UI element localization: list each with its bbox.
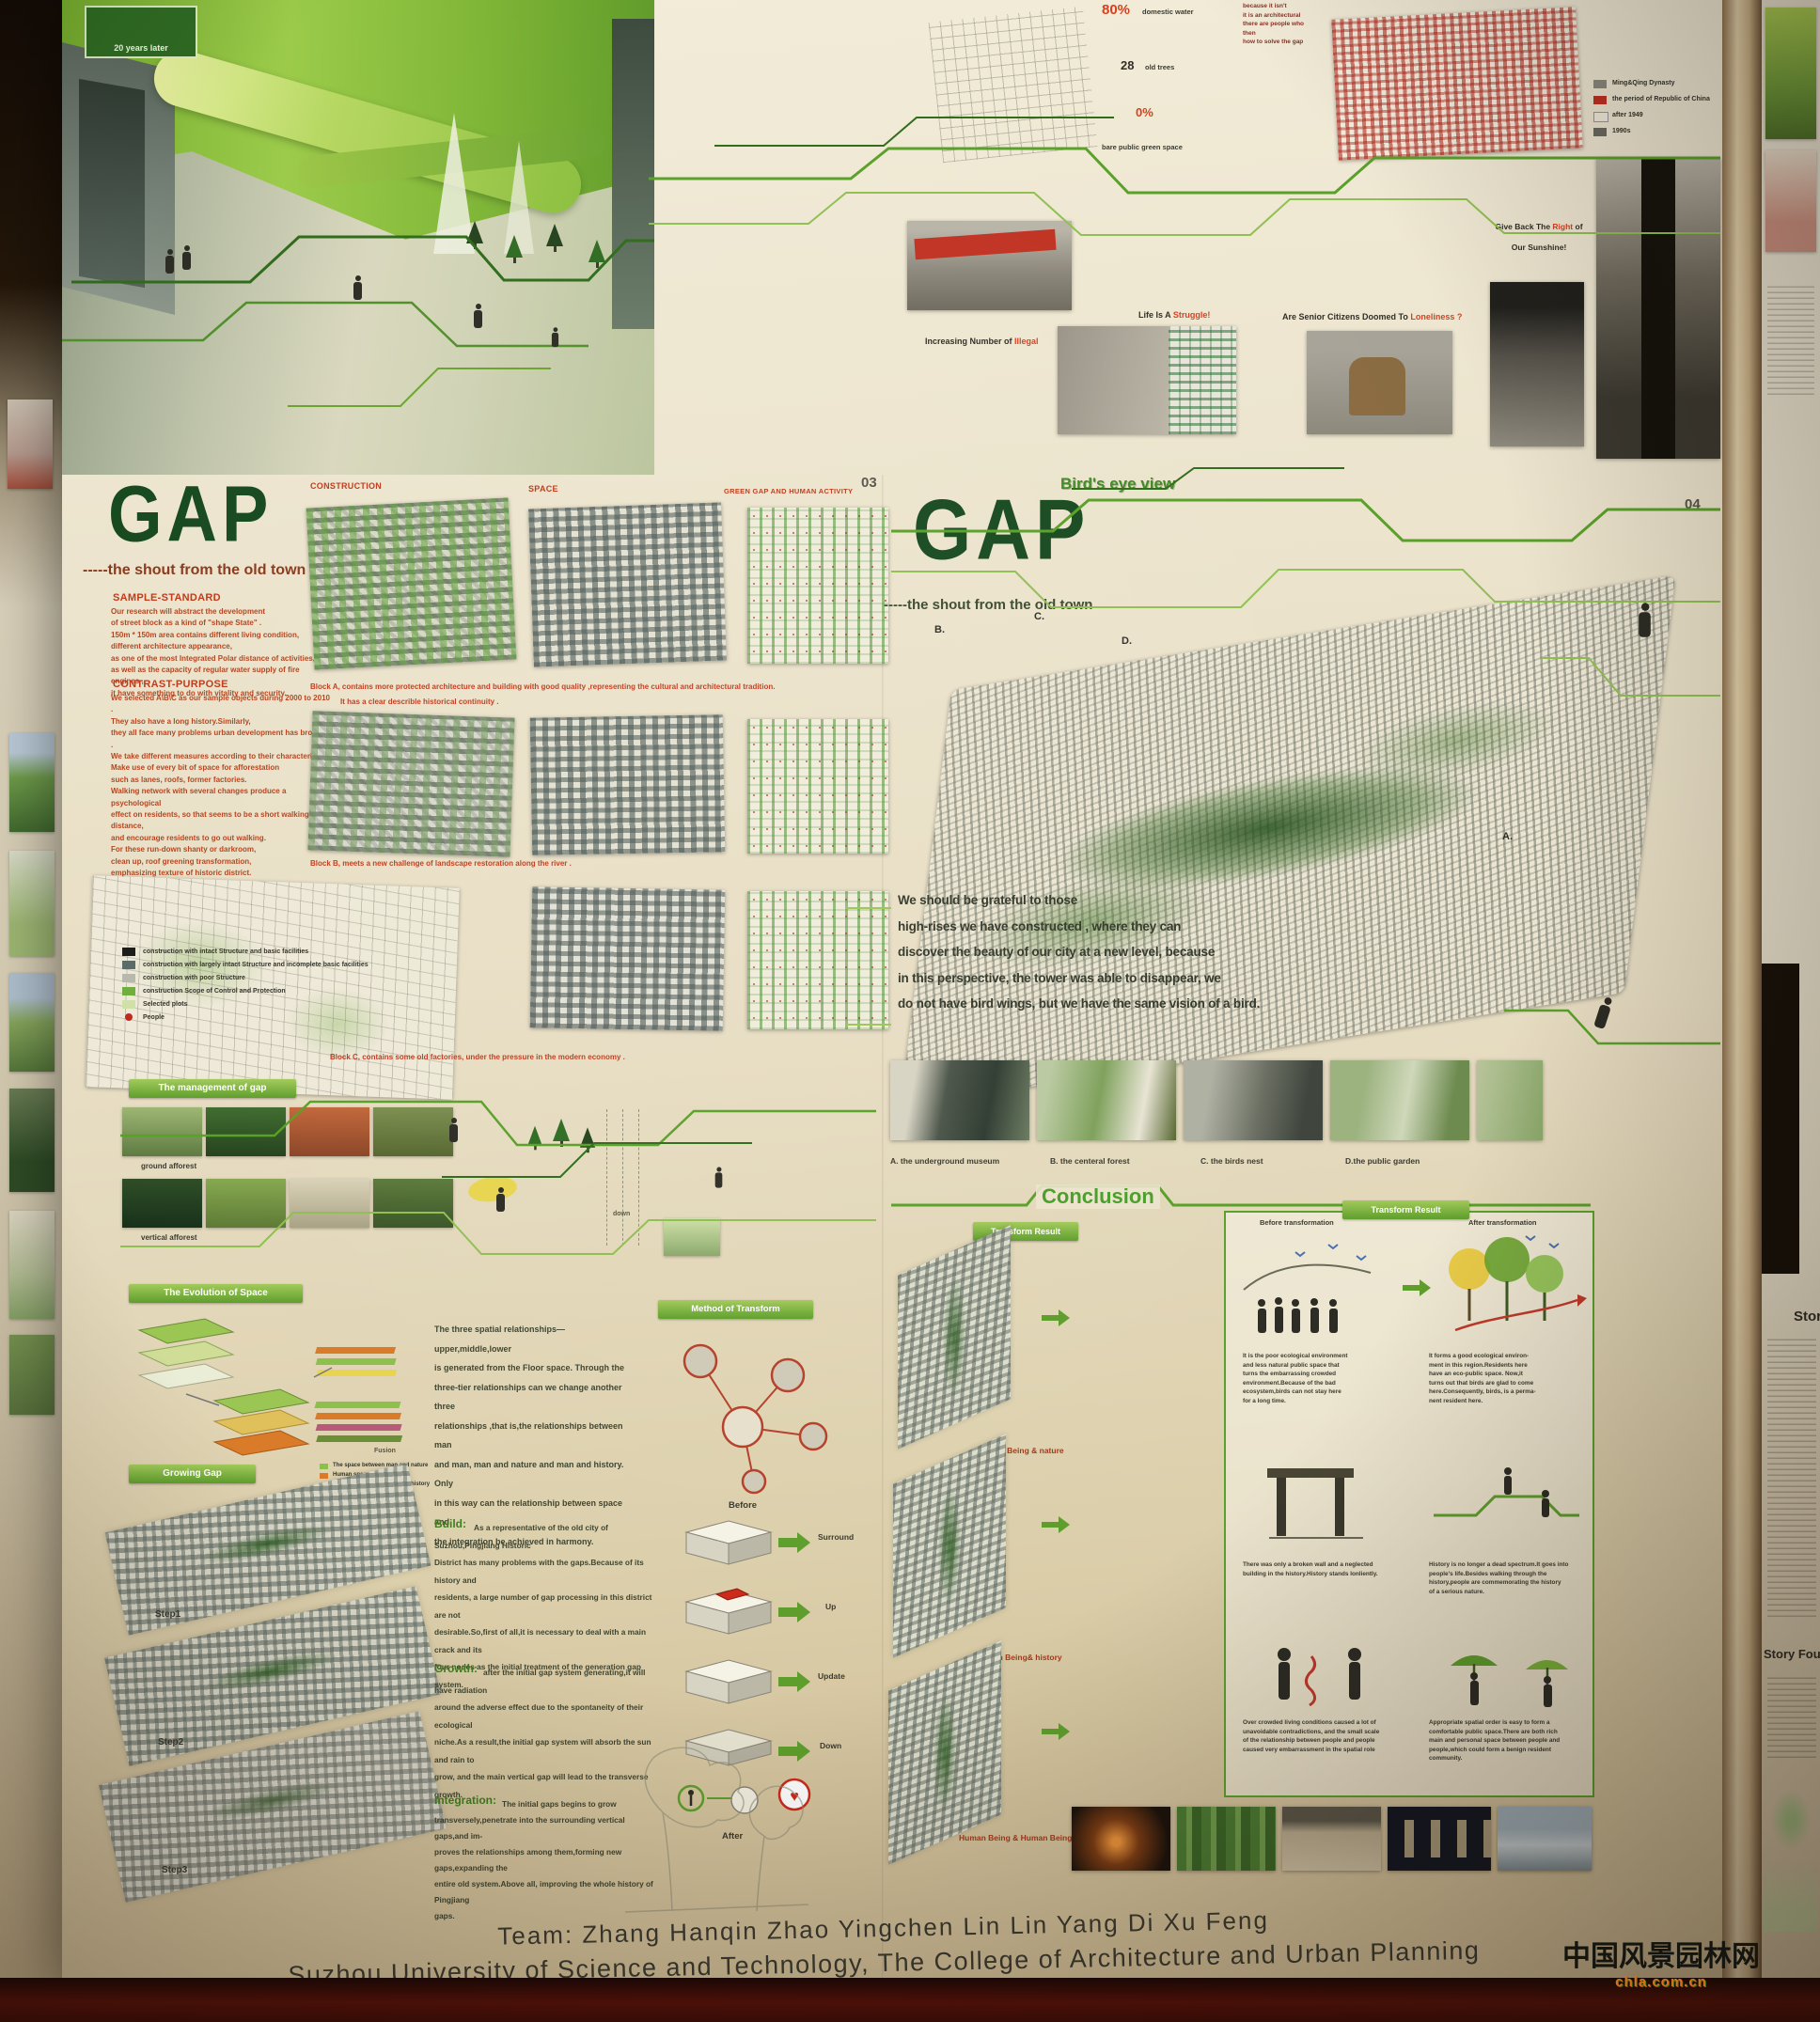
watermark-cn: 中国风景园林网: [1562, 1933, 1760, 1974]
person-silhouette: [182, 252, 191, 270]
panel04-title: GAP: [913, 487, 1090, 572]
legend-chip: [1593, 128, 1607, 136]
umbrella-people-doodle: [1436, 1638, 1587, 1713]
neighbor-thumbnail: [9, 1335, 55, 1415]
legend-label: People: [143, 1014, 165, 1021]
person-silhouette: [474, 310, 482, 328]
neighbor-thumbnail: [9, 733, 55, 832]
stat-value: 80%: [1102, 2, 1130, 18]
legend-chip: [320, 1464, 328, 1469]
arrow-right-icon: [1403, 1278, 1431, 1297]
neighbor-text-lines: [1767, 1335, 1816, 1617]
issue-label-struggle: Life Is A Struggle!: [1138, 310, 1210, 320]
crowded-people-doodle: [1260, 1638, 1391, 1713]
block-a-space-map: [528, 502, 727, 666]
legend-label: Selected plots: [143, 1001, 187, 1008]
bottom-photo-wall: [1498, 1807, 1592, 1871]
matrix-header-space: SPACE: [528, 484, 558, 494]
broken-gate-doodle: [1260, 1459, 1373, 1544]
legend-chip: [122, 987, 135, 995]
construction-legend: construction with intact Structure and b…: [122, 948, 432, 1034]
integration-heading: Integration:: [434, 1794, 496, 1807]
legend-label: 1990s: [1612, 128, 1630, 134]
table-edge: [0, 1978, 1820, 2022]
crowd-branch-doodle: [1239, 1233, 1399, 1346]
calligraphy-panel: [1169, 326, 1236, 434]
eco-trees-doodle: [1436, 1227, 1587, 1344]
marker-b: B.: [934, 624, 945, 635]
history-walk-doodle: [1429, 1459, 1584, 1544]
vertical-afforest-label: vertical afforest: [141, 1233, 197, 1242]
r1-after-text: It forms a good ecological environ- ment…: [1429, 1352, 1583, 1406]
tree-icon: [580, 1127, 595, 1148]
legend-chip: [1593, 112, 1608, 122]
neighbor-heading: Story Four: [1764, 1647, 1820, 1661]
neighbor-thumbnail: [1765, 150, 1816, 252]
after-transformation-header: After transformation: [1468, 1218, 1537, 1227]
r2-after-text: History is no longer a dead spectrum.It …: [1429, 1560, 1583, 1596]
transform-map-label: Human Being & Human Being: [959, 1833, 1072, 1842]
person-silhouette: [552, 333, 558, 347]
issue-label-text: Increasing Number of: [925, 337, 1014, 346]
afforest-photo: [290, 1179, 369, 1228]
block-a-caption: Block A, contains more protected archite…: [310, 682, 775, 691]
marker-d: D.: [1122, 635, 1132, 647]
legend-label: The space between man and nature: [333, 1463, 428, 1468]
legend-chip: [1593, 80, 1607, 88]
legend-chip: [320, 1473, 328, 1479]
site-watermark: 中国风景园林网 chla.com.cn: [1562, 1933, 1760, 1990]
afforest-photo: [122, 1179, 202, 1228]
r2-before-text: There was only a broken wall and a negle…: [1243, 1560, 1401, 1578]
step3-label: Step3: [162, 1865, 187, 1875]
matrix-header-greengap: GREEN GAP AND HUMAN ACTIVITY: [724, 487, 853, 495]
birdseye-heading: Bird's eye view: [1060, 475, 1175, 494]
map-legend: Ming&Qing Dynasty the period of Republic…: [1593, 80, 1720, 146]
panel03-title: GAP: [108, 475, 273, 554]
section-guideline: [638, 1109, 639, 1246]
person-silhouette: [353, 282, 362, 300]
issue-label-text: Life Is A: [1138, 310, 1173, 320]
grateful-paragraph: We should be grateful to those high-rise…: [898, 887, 1293, 1017]
step-label: Down: [820, 1741, 841, 1750]
block-a-activity-map: [747, 508, 888, 664]
neighbor-text-lines: [1767, 1673, 1816, 1758]
block-c-activity-map: [747, 891, 888, 1029]
page-number-03: 03: [861, 475, 877, 491]
legend-chip: [122, 948, 135, 956]
neighbor-tree-sketch: [1764, 1772, 1818, 1932]
block-b-construction-map: [307, 711, 514, 856]
evolution-badge: The Evolution of Space: [129, 1284, 303, 1303]
red-banner: [914, 229, 1056, 259]
neighbor-dark-strip: [1762, 964, 1799, 1274]
conclusion-heading: Conclusion: [1036, 1184, 1160, 1209]
bw-house-photo: [1490, 282, 1584, 447]
fusion-label: Fusion: [374, 1448, 396, 1454]
notes-text: because it isn't it is an architectural …: [1243, 2, 1304, 47]
stat-label: bare public green space: [1102, 143, 1183, 151]
legend-label: construction Scope of Control and Protec…: [143, 988, 286, 995]
person-silhouette: [715, 1172, 723, 1187]
issue-label-sunshine: Give Back The Right of Our Sunshine!: [1478, 216, 1600, 258]
step2-label: Step2: [158, 1737, 183, 1748]
alley-shadow: [1641, 158, 1675, 459]
marker-a: A.: [1502, 831, 1513, 842]
neighbor-heading: Stor: [1794, 1309, 1820, 1324]
stat-value: 0%: [1136, 105, 1153, 119]
gallery-caption-a: A. the underground museum: [890, 1156, 999, 1166]
panel04-subtitle: -----the shout from the old town: [884, 597, 1092, 613]
neighbor-thumbnail: [1765, 8, 1816, 139]
issue-label-em: Loneliness ?: [1410, 312, 1462, 321]
issue-label-em: Right: [1552, 222, 1573, 231]
afforest-photo: [206, 1107, 286, 1156]
management-badge: The management of gap: [129, 1079, 296, 1098]
legend-label: Ming&Qing Dynasty: [1612, 80, 1675, 86]
graffiti-photo: [1058, 326, 1236, 434]
contrast-purpose-heading: CONTRAST-PURPOSE: [113, 679, 228, 690]
method-badge: Method of Transform: [658, 1300, 813, 1319]
street-photo: [907, 221, 1072, 310]
stat-value: 28: [1121, 58, 1134, 72]
hero-sign-label: 20 years later: [114, 43, 168, 53]
tree-icon: [527, 1126, 541, 1145]
right-neighbor-poster: Stor Story Four: [1762, 0, 1820, 2022]
issue-label-em: Illegal: [1014, 337, 1039, 346]
page-number-04: 04: [1685, 496, 1701, 512]
wicker-chair: [1349, 357, 1405, 415]
gallery-photo-a: [890, 1060, 1029, 1140]
bw-alley-photo: [1596, 158, 1720, 459]
down-label: down: [613, 1211, 630, 1217]
gallery-photo-d: [1330, 1060, 1469, 1140]
step1-label: Step1: [155, 1609, 180, 1620]
block-a-caption2: It has a clear describle historical cont…: [340, 698, 499, 706]
legend-label: after 1949: [1612, 112, 1643, 118]
person-silhouette: [449, 1124, 458, 1142]
bottom-photo-bamboo: [1177, 1807, 1276, 1871]
legend-chip: [125, 1013, 133, 1021]
legend-chip: [122, 974, 135, 982]
step-label: Up: [825, 1602, 836, 1611]
gallery-caption-d: D.the public garden: [1345, 1156, 1420, 1166]
person-silhouette: [496, 1194, 505, 1212]
afforest-photo: [290, 1107, 369, 1156]
neighbor-thumbnail: [9, 1211, 55, 1319]
legend-label: the period of Republic of China: [1612, 96, 1710, 102]
small-green-sketch: [664, 1218, 720, 1256]
section-guideline: [622, 1109, 623, 1246]
arrow-right-icon: [1042, 1722, 1070, 1741]
afforest-photo: [122, 1107, 202, 1156]
r3-before-text: Over crowded living conditions caused a …: [1243, 1718, 1401, 1754]
box-transform-badge: Transform Result: [1342, 1200, 1469, 1219]
arrow-right-icon: [1042, 1309, 1070, 1327]
street-sketch-map: [929, 7, 1098, 163]
marker-c: C.: [1034, 611, 1044, 622]
transform-network-diagram: [649, 1324, 865, 1497]
neighbor-thumbnail: [9, 973, 55, 1072]
person-silhouette: [1639, 612, 1651, 637]
person-silhouette: [165, 256, 174, 274]
legend-label: construction with poor Structure: [143, 975, 245, 981]
bottom-photo-oldhouse: [1282, 1807, 1381, 1871]
watermark-url: chla.com.cn: [1562, 1974, 1760, 1990]
legend-label: construction with intact Structure and b…: [143, 948, 308, 955]
tree-sketch: [616, 1737, 813, 1916]
gallery-caption-c: C. the birds nest: [1200, 1156, 1263, 1166]
before-transformation-header: Before transformation: [1260, 1218, 1334, 1227]
neighbor-thumbnail: [9, 851, 55, 956]
evolution-planes-diagram: [130, 1311, 421, 1481]
chair-photo: [1307, 331, 1452, 434]
section-guideline: [606, 1109, 607, 1246]
bottom-photo-signboard: [1388, 1807, 1491, 1871]
bottom-photo-lantern: [1072, 1807, 1170, 1871]
issue-label-text: of: [1573, 222, 1582, 231]
step-label: Update: [818, 1671, 845, 1681]
issue-label-text: Our Sunshine!: [1512, 243, 1567, 252]
build-heading: Build:: [434, 1517, 466, 1530]
afforest-photo: [206, 1179, 286, 1228]
issue-label-em: Struggle!: [1173, 310, 1211, 320]
issue-label-illegal: Increasing Number of Illegal: [925, 337, 1039, 346]
hero-circuit-lines: [62, 0, 654, 475]
block-b-space-map: [530, 714, 726, 855]
block-c-space-map: [530, 886, 726, 1031]
issue-label-text: Give Back The: [1495, 222, 1552, 231]
stat-label: domestic water: [1142, 8, 1194, 16]
frame-bar: [1722, 0, 1762, 2022]
r3-after-text: Appropriate spatial order is easy to for…: [1429, 1718, 1583, 1763]
neighbor-thumbnail: [8, 400, 53, 489]
legend-label: construction with largely intact Structu…: [143, 962, 369, 968]
growing-badge: Growing Gap: [129, 1465, 256, 1483]
block-b-activity-map: [747, 719, 888, 854]
before-label: Before: [729, 1500, 757, 1511]
afforest-photo: [373, 1179, 453, 1228]
growth-heading: Growth:: [434, 1662, 478, 1675]
legend-chip: [122, 1000, 135, 1009]
panel03-subtitle: -----the shout from the old town: [83, 562, 306, 579]
stat-label: old trees: [1145, 63, 1174, 71]
neighbor-text-lines: [1767, 282, 1814, 395]
hero-sign: 20 years later: [85, 6, 197, 58]
tree-icon: [553, 1119, 570, 1141]
block-b-caption: Block B, meets a new challenge of landsc…: [310, 859, 572, 868]
historic-district-map: [1331, 7, 1582, 160]
neighbor-thumbnail: [9, 1089, 55, 1192]
legend-chip: [1593, 96, 1607, 104]
board-crease: [882, 475, 885, 1979]
hero-render-image: 20 years later: [62, 0, 654, 475]
exhibition-photo: 20 years later 80% domestic water 28 old…: [0, 0, 1820, 2022]
afforest-photo: [373, 1107, 453, 1156]
gallery-photo-c: [1184, 1060, 1323, 1140]
issue-label-text: Are Senior Citizens Doomed To: [1282, 312, 1410, 321]
block-a-construction-map: [306, 497, 517, 669]
sample-standard-heading: SAMPLE-STANDARD: [113, 592, 221, 603]
gallery-photo-b: [1037, 1060, 1176, 1140]
block-c-caption: Block C, contains some old factories, un…: [330, 1053, 625, 1061]
arrow-right-icon: [1042, 1515, 1070, 1534]
ground-afforest-label: ground afforest: [141, 1162, 196, 1170]
matrix-header-construction: CONSTRUCTION: [310, 481, 382, 491]
gallery-photo-extra: [1477, 1060, 1543, 1140]
step-label: Surround: [818, 1532, 854, 1542]
issue-label-lonely: Are Senior Citizens Doomed To Loneliness…: [1282, 312, 1462, 321]
r1-before-text: It is the poor ecological environment an…: [1243, 1352, 1401, 1406]
legend-chip: [122, 961, 135, 969]
gallery-caption-b: B. the centeral forest: [1050, 1156, 1130, 1166]
